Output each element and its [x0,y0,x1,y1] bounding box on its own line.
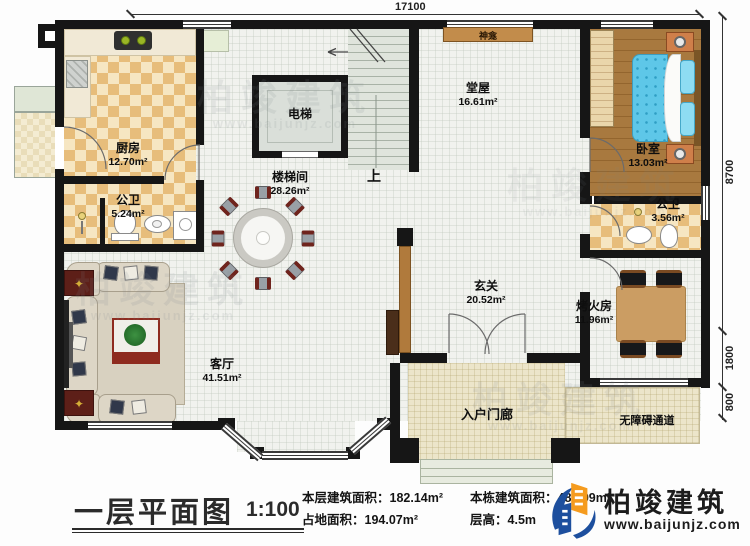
room-area: 16.61m² [438,96,518,108]
room-label-elevator: 电梯 [270,108,330,122]
elevator-wall [252,75,348,82]
wall-kitchen-east [196,29,204,145]
dining-chair [212,231,225,247]
stat-value: 194.07m² [365,513,419,527]
wardrobe [590,30,614,127]
top-dimension-value: 17100 [395,1,426,13]
top-dimension-line [130,14,700,15]
stat-value: 182.14m² [390,491,444,505]
right-dimension-upper: 8700 [724,142,736,202]
shoe-cabinet [386,310,399,355]
room-area: 41.51m² [180,372,264,384]
hall-cabinet [203,30,229,52]
room-label-foyer: 玄关 20.52m² [446,280,526,306]
sofa-cushion [143,265,158,280]
wall-foyer-south [400,353,447,363]
stove-burner [137,36,146,45]
wall-bath2-south [580,250,710,258]
side-cabinet: ✦ [64,390,94,416]
window-south-fireroom [600,378,688,387]
kitchen-sink [66,60,88,88]
right-dimension-lower: 800 [724,372,736,432]
room-label-bath2: 公卫 3.56m² [628,198,708,224]
room-name: 公卫 [628,198,708,212]
shrine-label: 神龛 [443,29,533,42]
sofa-cushion [71,335,87,351]
sofa-cushion [123,265,138,280]
window-south-living [88,421,172,430]
wall-kitchen-bath1 [64,176,164,184]
sofa-cushion [71,309,87,325]
stairs [348,29,409,170]
porch-column [390,438,419,463]
room-name: 公卫 [86,194,170,208]
stat-label: 本栋建筑面积： [470,491,558,505]
wall-bath2-west [580,234,590,250]
stove [114,31,152,50]
elevator-door [282,151,318,158]
sofa-cushion [131,399,147,415]
bath2-sink [626,226,652,244]
stove-burner [121,36,130,45]
porch-column [551,438,580,463]
right-dimension-line [722,16,723,420]
stat-label: 本层建筑面积： [302,491,390,505]
fire-room-chair [620,340,646,358]
brand-name: 柏竣建筑 [604,481,728,520]
sofa-cushion [71,361,86,376]
bed-mattress [632,54,668,142]
dining-chair [255,277,271,290]
room-label-fire-room: 烤火房 11.96m² [556,300,632,326]
room-label-kitchen: 厨房 12.70m² [86,142,170,168]
sofa-cushion [109,399,125,415]
bed-blanket [664,54,681,142]
fire-room-chair [656,340,682,358]
stat-floor-area: 本层建筑面积：182.14m² [302,487,443,506]
elevator-wall [252,75,259,158]
foyer-partition [399,246,411,353]
porch-steps [420,459,553,484]
toilet-tank [111,233,139,241]
floorplan-canvas: 17100 8700 1800 800 [0,0,750,546]
plan-scale: 1:100 [246,498,300,522]
bay-window-right [349,417,391,455]
room-area: 20.52m² [446,294,526,306]
room-name: 楼梯间 [250,171,330,185]
stat-storey-height: 层高：4.5m [470,509,536,528]
wall-porch-west [390,363,400,440]
side-cabinet: ✦ [64,270,94,296]
bed-headboard [694,50,701,146]
room-area: 11.96m² [556,314,632,326]
window-north-bedroom [601,20,653,29]
potted-plant [124,324,146,346]
drain-stem [81,221,83,234]
fire-room-chair [620,270,646,288]
wall-bedroom-west [580,29,590,138]
wall-west [55,20,64,430]
fire-room-chair [656,270,682,288]
brand-url: www.baijunjz.com [604,516,741,532]
elevator-wall [341,75,348,158]
bed-pillow [680,60,695,94]
wall-foyer-south [527,353,580,363]
room-name: 烤火房 [556,300,632,314]
plan-title: 一层平面图 [74,489,234,531]
tv-screen [69,322,73,368]
washer-drum [179,218,192,231]
wall-bedroom-west [580,172,590,196]
room-label-stairwell: 楼梯间 28.26m² [250,171,330,197]
room-area: 28.26m² [250,185,330,197]
room-name: 电梯 [270,108,330,122]
room-label-living-room: 客厅 41.51m² [180,358,264,384]
stat-footprint-area: 占地面积：194.07m² [302,509,418,528]
stat-label: 占地面积： [302,513,365,527]
room-label-bedroom: 卧室 13.03m² [608,143,688,169]
room-area: 13.03m² [608,157,688,169]
room-label-bath1: 公卫 5.24m² [86,194,170,220]
sink-drain [152,220,162,228]
wall-bath1-east [196,180,204,252]
side-stoop-landing [14,86,60,112]
room-area: 3.56m² [628,212,708,224]
wall-stairs-east [409,29,419,172]
wall-joint [592,196,594,204]
title-underline [72,528,304,530]
title-underline-2 [72,532,304,533]
coffee-table-shelf [112,352,160,364]
sofa-cushion [103,265,119,281]
entry-porch-label: 入户门廊 [437,404,537,423]
room-name: 卧室 [608,143,688,157]
side-stoop-tiles [14,112,60,178]
room-label-hall: 堂屋 16.61m² [438,82,518,108]
bed-pillow [680,102,695,136]
door-opening-stoop [55,127,64,169]
room-name: 堂屋 [438,82,518,96]
room-area: 5.24m² [86,208,170,220]
accessible-ramp-label: 无障碍通道 [597,412,697,428]
dining-chair [302,231,315,247]
floor-drain [78,212,86,220]
wall-bath1-south [55,244,204,252]
brand-logo-icon [546,477,600,541]
room-name: 玄关 [446,280,526,294]
nightstand-lamp [674,36,686,48]
room-area: 12.70m² [86,156,170,168]
stat-label: 层高： [470,513,508,527]
window-north [183,20,231,29]
stairs-up-label: 上 [362,166,386,186]
wall-divider-cap [397,228,413,246]
bay-window-center [262,451,348,460]
bath2-toilet [660,224,678,248]
room-name: 厨房 [86,142,170,156]
stat-value: 4.5m [508,513,537,527]
chimney-column [38,24,62,48]
room-name: 客厅 [180,358,264,372]
building-logo-icon [546,477,600,541]
dining-table-center [256,231,270,245]
